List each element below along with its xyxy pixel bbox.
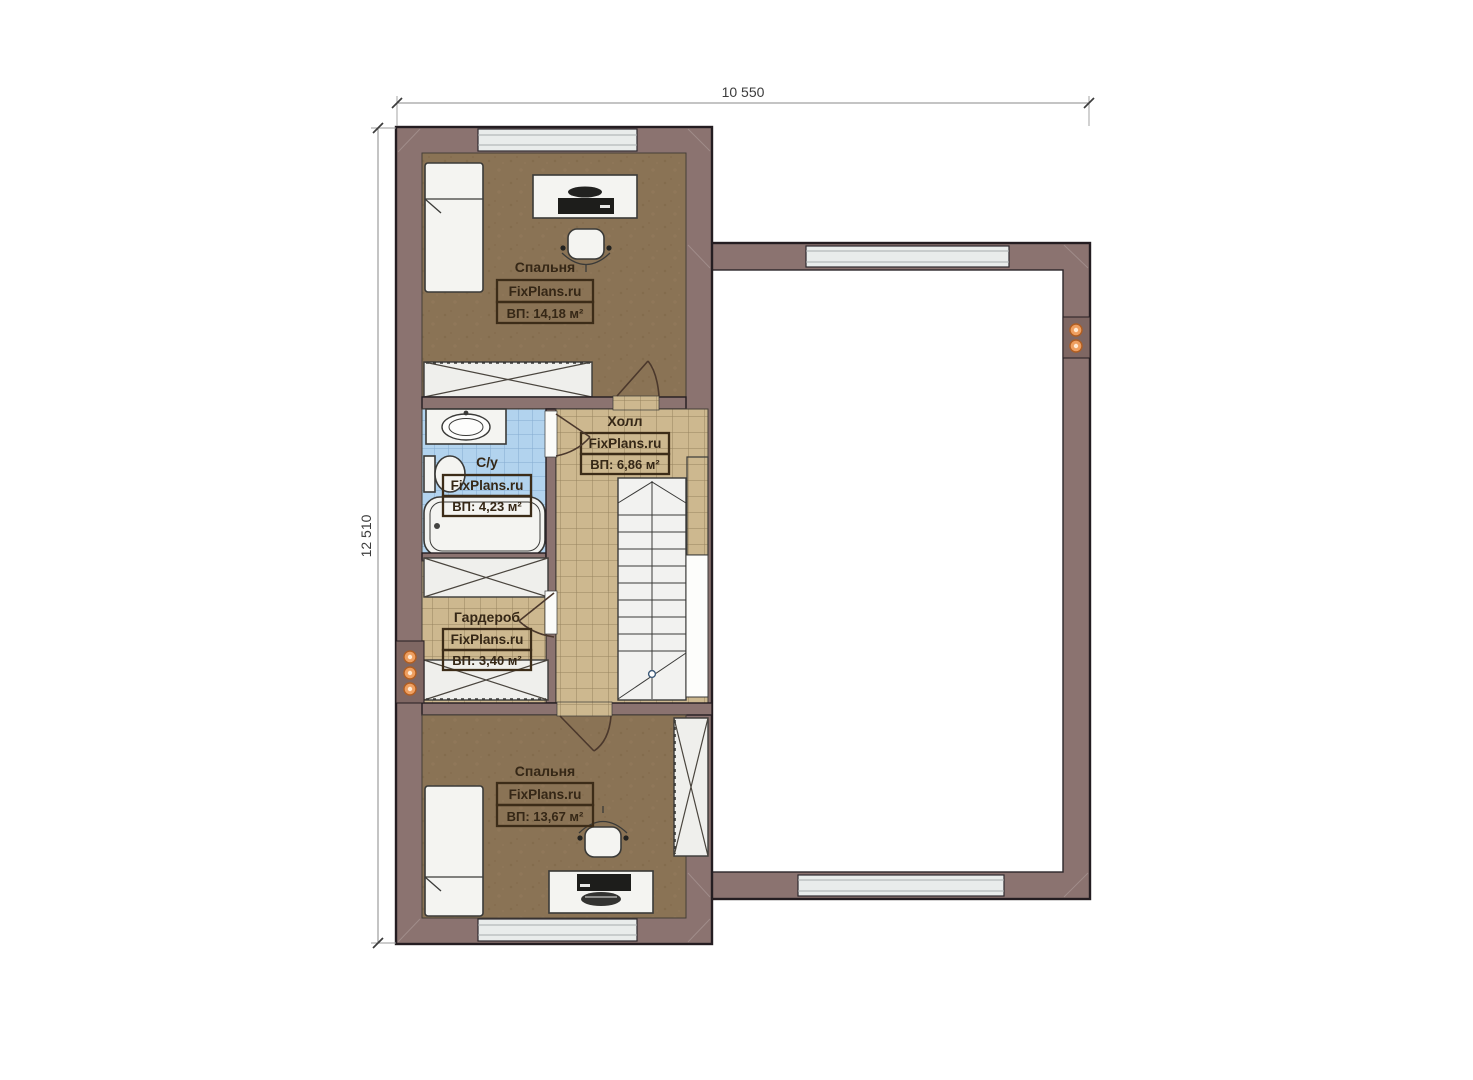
- watermark-label: FixPlans.ru: [451, 632, 524, 647]
- stair-railing: [687, 457, 708, 555]
- stair-landing: [686, 555, 708, 697]
- room-name-label: Гардероб: [454, 609, 521, 625]
- room-wardrobe: Гардероб FixPlans.ru ВП: 3,40 м²: [422, 558, 557, 703]
- watermark-label: FixPlans.ru: [589, 436, 662, 451]
- room-name-label: С/у: [476, 454, 498, 470]
- dimension-height-label: 12 510: [358, 514, 374, 557]
- room-hall: Холл FixPlans.ru ВП: 6,86 м²: [556, 409, 708, 703]
- room-bedroom-top: Спальня FixPlans.ru ВП: 14,18 м²: [422, 129, 686, 397]
- room-name-label: Холл: [607, 413, 642, 429]
- wardrobe-cabinet-icon: [674, 718, 708, 856]
- ceiling-lights-left: [396, 641, 424, 703]
- dimension-width-label: 10 550: [722, 84, 765, 100]
- desk-icon: [549, 871, 653, 913]
- main-block: Спальня FixPlans.ru ВП: 14,18 м²: [396, 127, 712, 944]
- room-bathroom: С/у FixPlans.ru ВП: 4,23 м²: [422, 409, 546, 556]
- wardrobe-cabinet-icon: [424, 558, 548, 597]
- floor-plan: Спальня FixPlans.ru ВП: 14,18 м²: [0, 0, 1473, 1080]
- ceiling-lights-right: [1063, 317, 1090, 358]
- area-label: ВП: 6,86 м²: [590, 457, 660, 472]
- dimension-top: 10 550: [392, 84, 1094, 126]
- room-bedroom-bottom: Спальня FixPlans.ru ВП: 13,67 м²: [422, 702, 708, 941]
- area-label: ВП: 3,40 м²: [452, 653, 522, 668]
- watermark-label: FixPlans.ru: [509, 787, 582, 802]
- bed-icon: [425, 786, 483, 916]
- desk-icon: [533, 175, 637, 218]
- window-open-top: [806, 246, 1009, 267]
- dimension-left: 12 510: [358, 123, 396, 948]
- area-label: ВП: 13,67 м²: [507, 809, 584, 824]
- wardrobe-cabinet-icon: [424, 362, 592, 397]
- sink-icon: [426, 409, 506, 444]
- watermark-label: FixPlans.ru: [451, 478, 524, 493]
- window-open-bottom: [798, 875, 1004, 896]
- room-label-wardrobe: Гардероб FixPlans.ru ВП: 3,40 м²: [443, 609, 531, 670]
- watermark-label: FixPlans.ru: [509, 284, 582, 299]
- window-bottom: [478, 919, 637, 941]
- area-label: ВП: 4,23 м²: [452, 499, 522, 514]
- area-label: ВП: 14,18 м²: [507, 306, 584, 321]
- open-space-void: [712, 270, 1063, 872]
- window-top: [478, 129, 637, 151]
- bed-icon: [425, 163, 483, 292]
- room-name-label: Спальня: [515, 259, 575, 275]
- room-name-label: Спальня: [515, 763, 575, 779]
- open-space: [686, 243, 1090, 899]
